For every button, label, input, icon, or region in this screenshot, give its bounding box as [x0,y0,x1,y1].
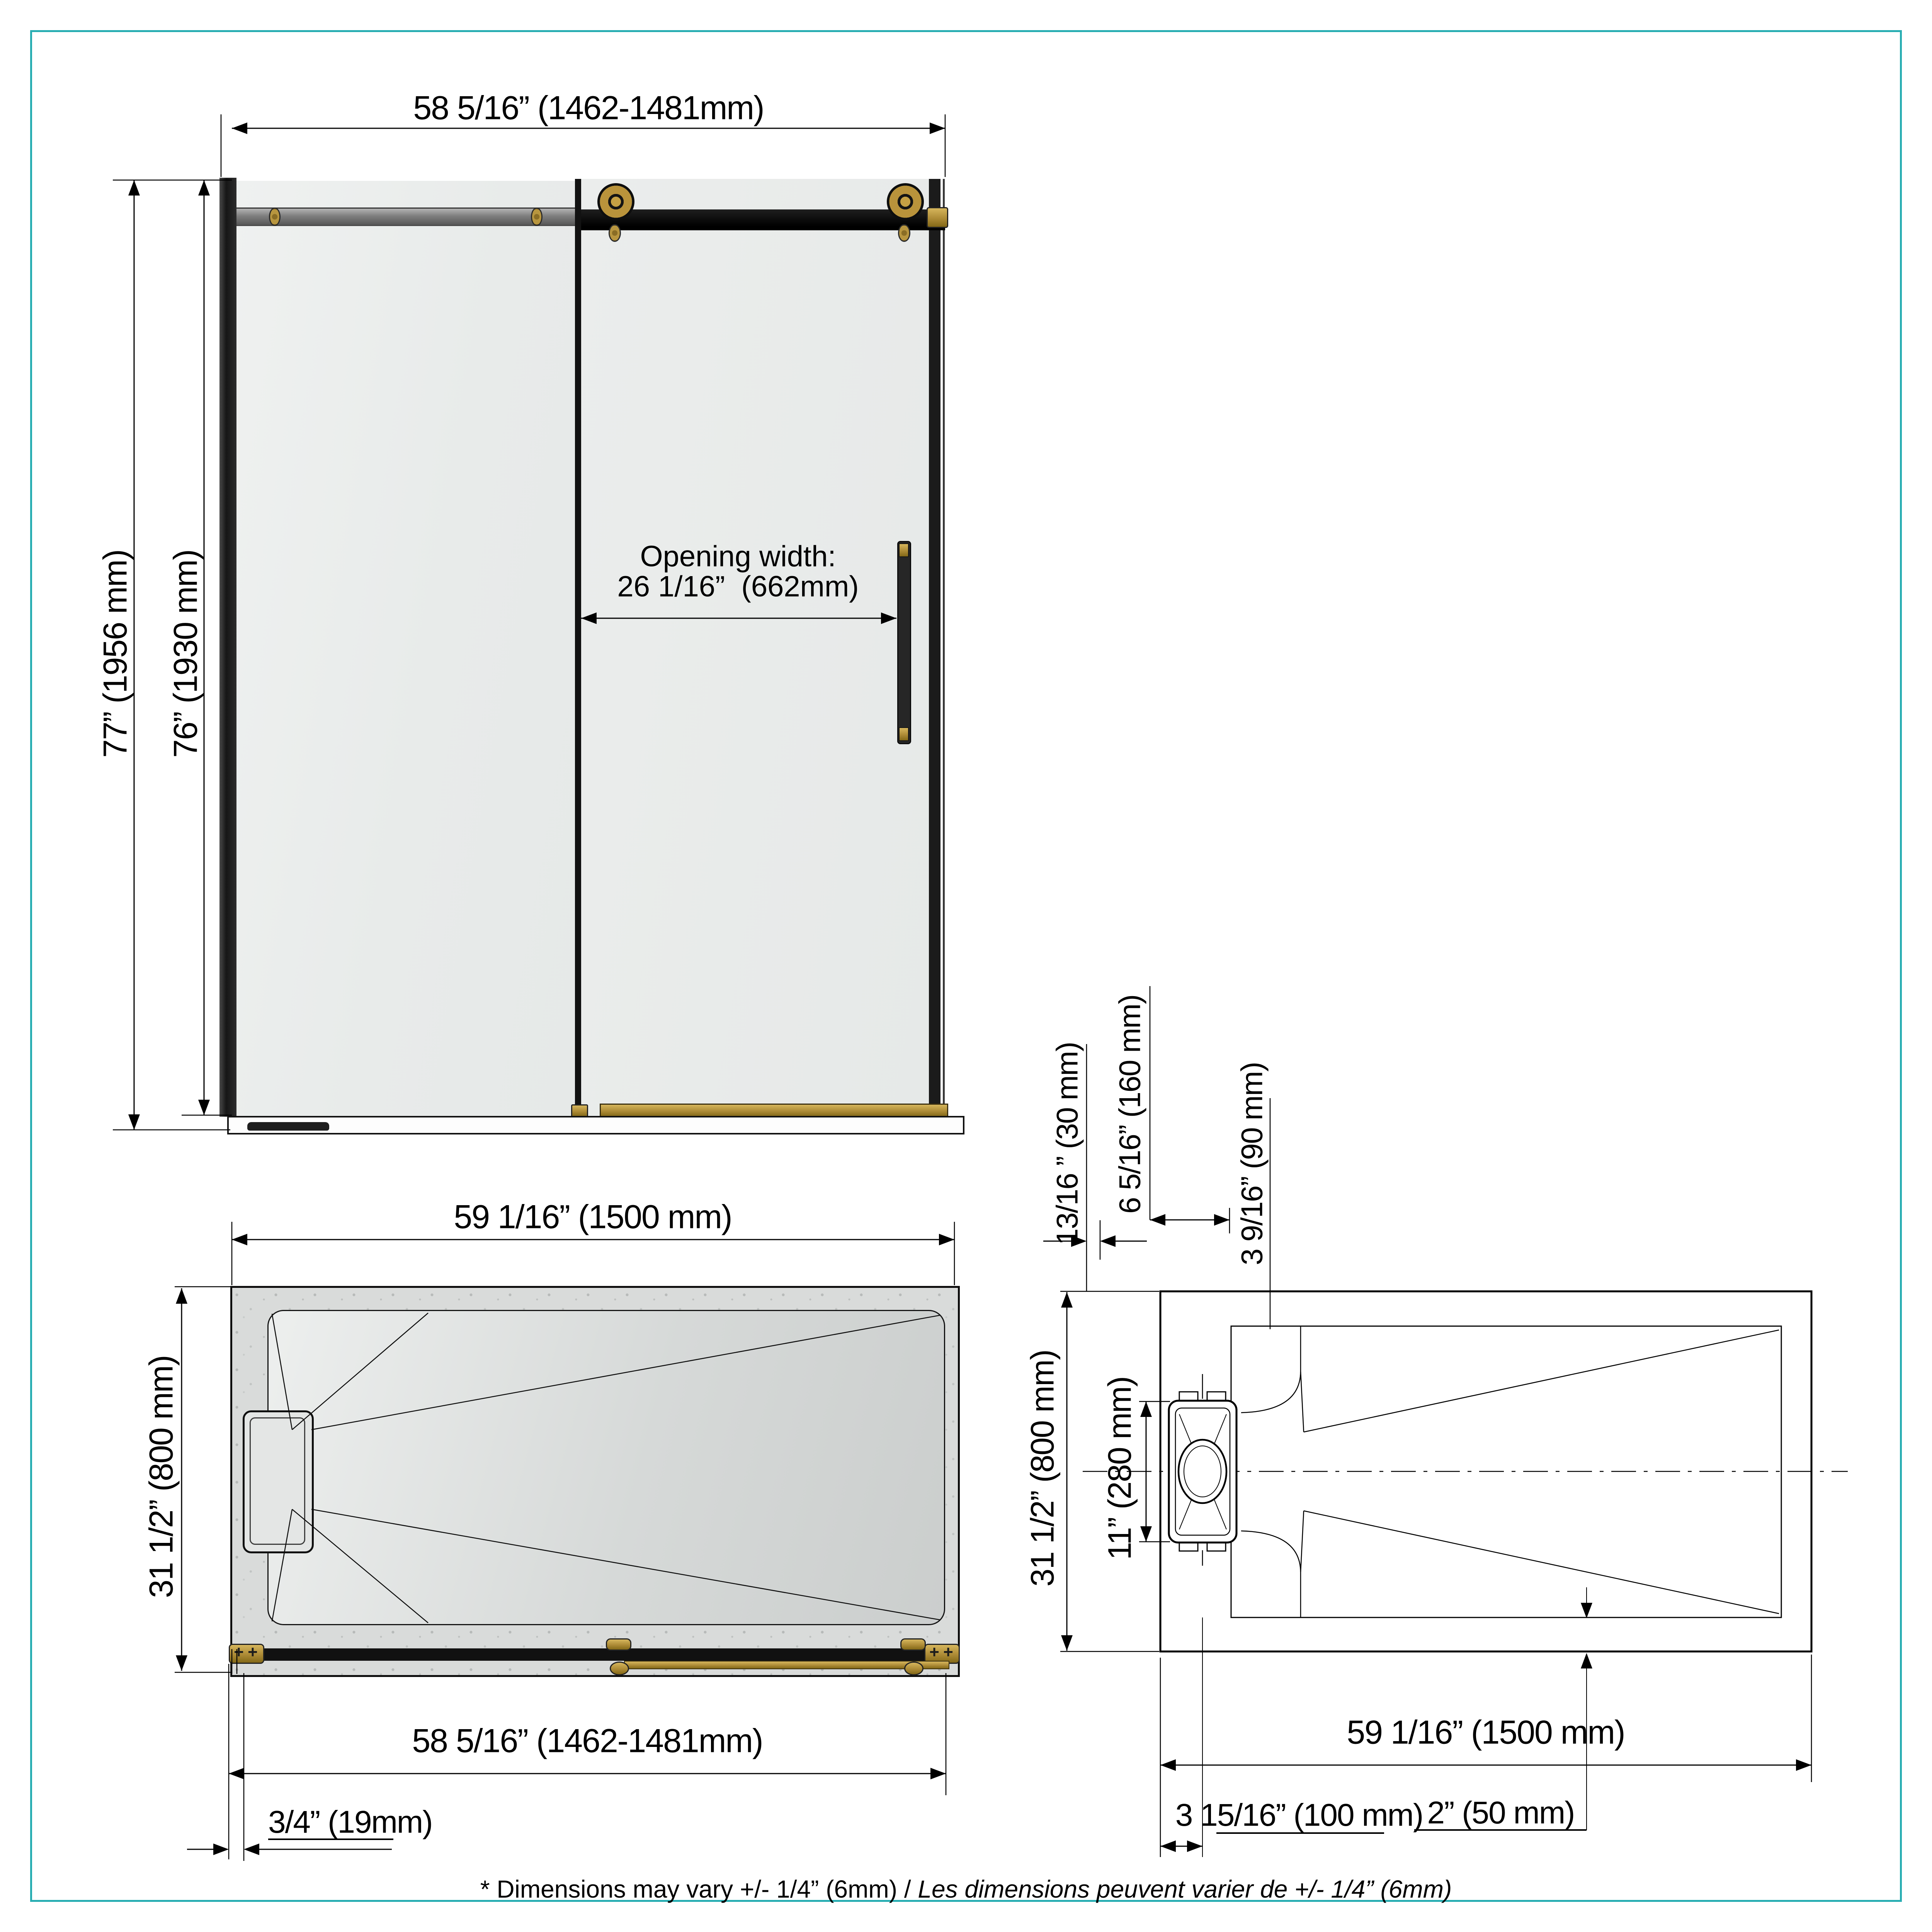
dimension-drawing-sheet: + + + + [0,0,1932,1932]
dim-drain-width: 6 5/16” (160 mm) [1112,995,1148,1214]
dim-drainview-width: 59 1/16” (1500 mm) [1347,1714,1624,1752]
drain-cover-inner-line [250,1417,305,1545]
dim-front-width: 58 5/16” (1462-1481mm) [413,89,764,128]
dim-front-height-total: 77” (1956 mm) [97,550,135,758]
track-end-cap-right [927,207,948,228]
roller-plan-right-top [900,1638,926,1651]
mullion-foot-glide [571,1104,588,1117]
anti-jump-right-icon [898,224,910,242]
base-floor-surface [267,1310,945,1625]
wall-edge-line-right [943,179,945,1116]
dim-drain-offset-100: 3 15/16” (100 mm) [1175,1797,1423,1833]
door-handle [897,541,911,744]
dim-base-lip: 3/4” (19mm) [268,1804,432,1840]
anti-jump-left-icon [609,224,621,242]
opening-width-title: Opening width: [640,540,836,573]
bottom-threshold-bar [600,1104,948,1117]
shower-base-lip-front [227,1116,964,1134]
mullion-glass-edge [575,179,581,1116]
cap-screw-icon: + [929,1643,939,1662]
dim-drain-center-offset: 3 9/16” (90 mm) [1235,1063,1270,1265]
roller-plan-left-top [606,1638,631,1651]
tolerance-footnote: * Dimensions may vary +/- 1/4” (6mm) / L… [0,1875,1932,1903]
cap-screw-icon: + [248,1643,258,1662]
roller-plan-right-bottom [904,1662,923,1675]
dim-drainview-depth: 31 1/2” (800 mm) [1024,1350,1061,1587]
dim-drain-offset-wall: 13/16 ” (30 mm) [1050,1043,1085,1245]
roller-plan-left-bottom [610,1662,629,1675]
cap-screw-icon: + [943,1643,953,1662]
handle-cap-top [899,543,909,557]
slider-track-bar [577,209,945,230]
header-track-plan [229,1648,957,1661]
dim-front-height-door: 76” (1930 mm) [167,550,205,758]
rail-screw-left-icon [269,207,281,226]
dim-base-width-bottom: 58 5/16” (1462-1481mm) [412,1722,762,1760]
dim-drain-edge-offset: 2” (50 mm) [1427,1795,1575,1831]
door-roller-right-icon [887,183,924,220]
door-stile-right [929,179,940,1116]
dim-base-depth: 31 1/2” (800 mm) [143,1355,181,1598]
base-drain-hump-front [247,1122,329,1131]
rail-screw-right-icon [531,207,543,226]
fixed-panel-glass [236,181,576,1116]
door-roller-left-icon [597,183,634,220]
opening-width-value: 26 1/16” (662mm) [617,570,859,604]
tolerance-footnote-en: * Dimensions may vary +/- 1/4” (6mm) / [480,1875,918,1903]
handle-cap-bottom [899,727,909,741]
cap-screw-icon: + [234,1643,244,1662]
sliding-door-glass [581,179,930,1116]
tolerance-footnote-fr: Les dimensions peuvent varier de +/- 1/4… [918,1875,1452,1903]
dim-drain-length: 11” (280 mm) [1101,1377,1139,1560]
fixed-panel-rail [236,207,577,226]
dim-base-width-top: 59 1/16” (1500 mm) [454,1198,731,1236]
header-rail-plan [624,1661,949,1669]
wall-profile-left [219,178,236,1117]
